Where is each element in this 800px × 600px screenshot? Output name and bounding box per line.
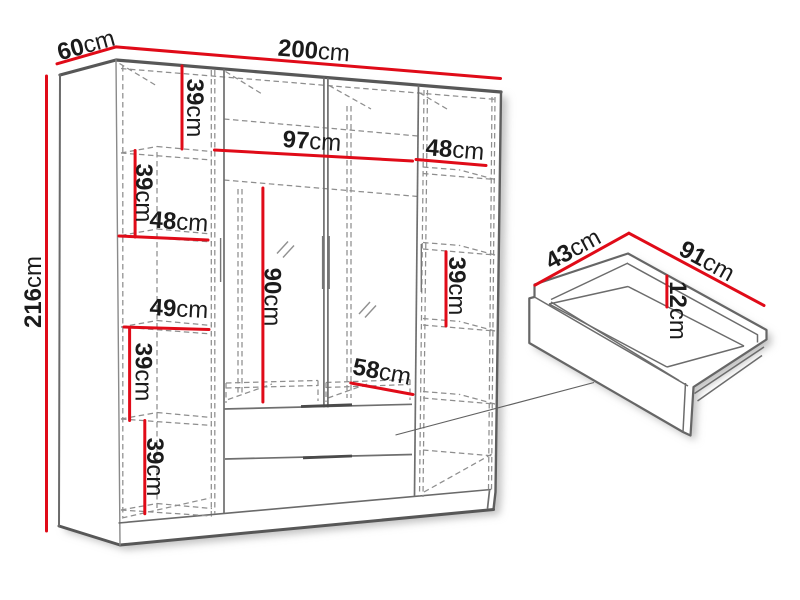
svg-text:216cm: 216cm bbox=[20, 256, 47, 328]
svg-text:39cm: 39cm bbox=[130, 343, 157, 402]
svg-text:12cm: 12cm bbox=[664, 281, 691, 340]
svg-text:48cm: 48cm bbox=[149, 206, 209, 237]
svg-text:39cm: 39cm bbox=[181, 79, 208, 138]
svg-text:39cm: 39cm bbox=[443, 257, 470, 316]
svg-text:90cm: 90cm bbox=[259, 268, 286, 327]
svg-text:49cm: 49cm bbox=[149, 294, 209, 324]
svg-text:97cm: 97cm bbox=[282, 126, 342, 157]
svg-text:48cm: 48cm bbox=[425, 134, 486, 166]
svg-text:39cm: 39cm bbox=[141, 438, 168, 497]
